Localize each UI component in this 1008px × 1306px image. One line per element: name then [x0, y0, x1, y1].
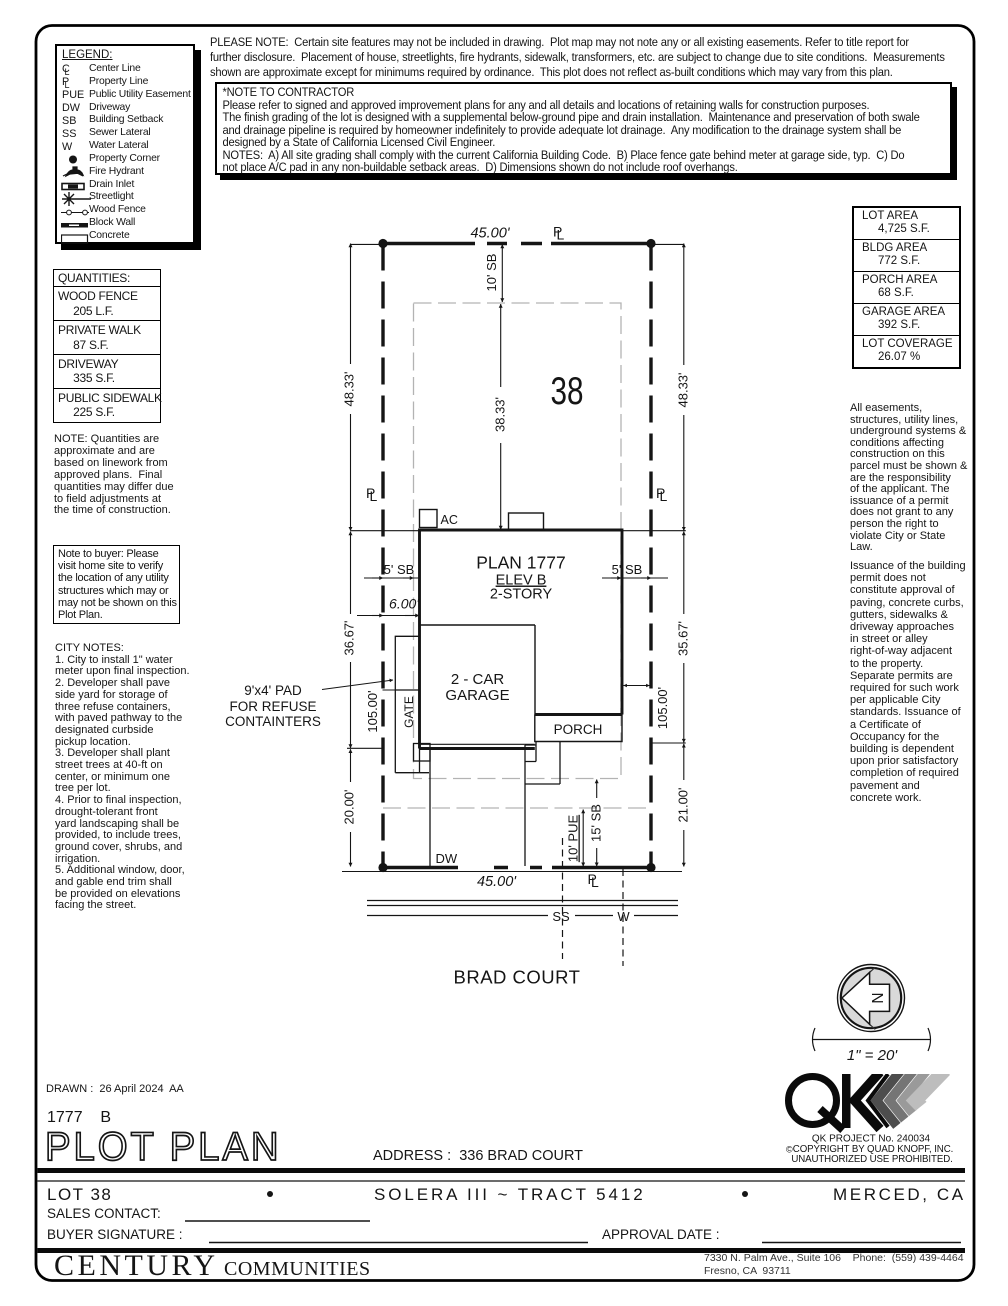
svg-text:DW: DW	[436, 851, 458, 866]
svg-text:L: L	[591, 874, 599, 890]
svg-text:2-STORY: 2-STORY	[490, 587, 553, 603]
svg-text:36.67': 36.67'	[342, 620, 357, 655]
svg-text:48.33': 48.33'	[676, 372, 691, 407]
svg-text:6.00': 6.00'	[389, 596, 420, 612]
svg-text:SB: SB	[62, 115, 76, 127]
svg-text:21.00': 21.00'	[676, 787, 691, 822]
svg-text:L: L	[660, 488, 668, 504]
svg-text:AC: AC	[441, 513, 458, 527]
svg-text:1" = 20': 1" = 20'	[847, 1047, 898, 1064]
svg-text:PORCH: PORCH	[554, 722, 603, 737]
svg-text:48.33': 48.33'	[342, 371, 357, 406]
svg-text:UNAUTHORIZED USE PROHIBITED.: UNAUTHORIZED USE PROHIBITED.	[791, 1154, 952, 1165]
svg-text:PLAN 1777: PLAN 1777	[476, 553, 566, 573]
svg-text:45.00': 45.00'	[470, 226, 510, 242]
svg-text:5' SB: 5' SB	[612, 562, 643, 577]
svg-text:SS: SS	[552, 909, 570, 924]
svg-text:GARAGE: GARAGE	[445, 687, 509, 704]
svg-text:BRAD COURT: BRAD COURT	[454, 967, 581, 988]
svg-text:38.33': 38.33'	[493, 397, 508, 432]
svg-text:W: W	[617, 909, 630, 924]
svg-text:GATE: GATE	[402, 696, 416, 728]
svg-text:45.00': 45.00'	[477, 874, 517, 890]
svg-text:10' SB: 10' SB	[484, 254, 499, 292]
svg-text:20.00': 20.00'	[342, 789, 357, 824]
svg-text:SS: SS	[62, 128, 76, 140]
svg-text:L: L	[557, 227, 565, 243]
svg-text:105.00': 105.00'	[365, 690, 380, 732]
svg-text:2 - CAR: 2 - CAR	[451, 671, 505, 688]
svg-text:QK PROJECT No. 240034: QK PROJECT No. 240034	[812, 1134, 931, 1145]
svg-text:W: W	[62, 141, 73, 153]
svg-text:15' SB: 15' SB	[588, 804, 603, 842]
svg-text:5' SB: 5' SB	[384, 562, 415, 577]
svg-text:PUE: PUE	[62, 89, 84, 101]
svg-text:L: L	[370, 488, 378, 504]
svg-text:35.67': 35.67'	[676, 621, 691, 656]
svg-text:10' PUE: 10' PUE	[566, 815, 581, 863]
svg-text:DW: DW	[62, 102, 81, 114]
svg-text:38: 38	[551, 370, 584, 413]
svg-text:N: N	[870, 992, 887, 1003]
svg-text:105.00': 105.00'	[655, 687, 670, 729]
